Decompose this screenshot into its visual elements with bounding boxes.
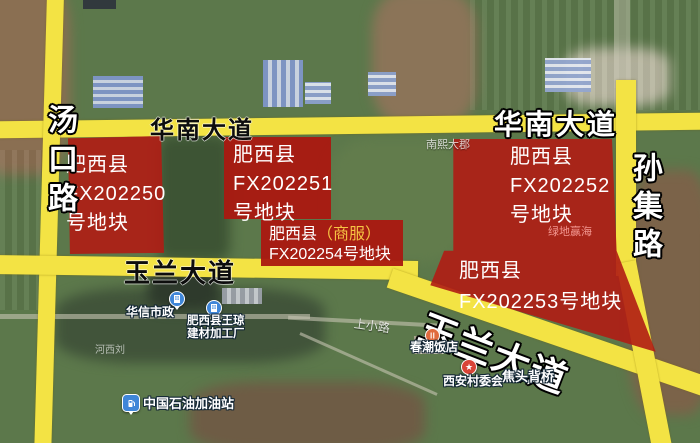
village-committee-poi-marker[interactable]: ★ [461, 359, 477, 375]
clipped-map-tag [83, 0, 116, 9]
poi-label-wangqiong-factory[interactable]: 肥西县王琼 建材加工厂 [187, 315, 245, 341]
parcel-line: 肥西县 [66, 151, 166, 180]
poi-label-line: 肥西县王琼 [187, 315, 245, 328]
parcel-line: 肥西县 [459, 256, 622, 287]
star-icon: ★ [465, 363, 473, 372]
parcel-line: 肥西县 [510, 143, 610, 172]
gas-pump-icon [127, 399, 136, 408]
building-cluster [263, 60, 303, 107]
parcel-label-fx202253: 肥西县 FX202253号地块 [459, 256, 622, 318]
parcel-line: 肥西县（商服） [269, 225, 391, 245]
parcel-line: FX202253号地块 [459, 287, 622, 318]
poi-label-huaxin[interactable]: 华信市政 [126, 306, 174, 319]
parcel-line: FX202254号地块 [269, 245, 391, 265]
place-label-hexiliu: 河西刘 [95, 341, 125, 356]
poi-label-line: 建材加工厂 [187, 328, 245, 341]
place-label-nanxi: 南熙大郡 [426, 136, 470, 152]
poi-label-jiaotou-bridge: 焦头背桥 [502, 370, 554, 383]
poi-label-chunchao[interactable]: 春潮饭店 [410, 341, 458, 354]
satellite-map-canvas[interactable]: 肥西县 FX202250 号地块 肥西县 FX202251 号地块 肥西县 FX… [0, 0, 700, 443]
parcel-line: 号地块 [233, 199, 333, 228]
parcel-label-fx202252: 肥西县 FX202252 号地块 [510, 143, 610, 230]
building-cluster [545, 58, 591, 92]
terrain-dirt-topcenter [372, 0, 477, 125]
parcel-label-fx202250: 肥西县 FX202250 号地块 [66, 151, 166, 238]
parcel-line: FX202251 [233, 170, 333, 199]
building-cluster [222, 288, 262, 304]
parcel-county: 肥西县 [269, 226, 317, 243]
parcel-line: FX202252 [510, 172, 610, 201]
building-cluster [368, 72, 396, 96]
parcel-line: FX202250 [66, 180, 166, 209]
building-icon [173, 295, 181, 303]
poi-label-xian-committee[interactable]: 西安村委会 [443, 375, 503, 388]
factory-poi-marker[interactable] [206, 300, 222, 316]
place-label-lvdi: 绿地赢海 [548, 223, 592, 239]
terrain-woods-strip [158, 135, 230, 260]
road-label-tangkou: 汤口路 [37, 104, 81, 221]
building-cluster [305, 82, 331, 104]
parcel-label-fx202251: 肥西县 FX202251 号地块 [233, 141, 333, 228]
road-label-sunji: 孙集路 [622, 152, 666, 266]
building-icon [210, 304, 218, 312]
road-label-huanan-east: 华南大道 [494, 103, 618, 143]
road-label-shangxiao: 上小路 [353, 315, 391, 337]
field-strips-top [470, 0, 700, 110]
building-cluster [93, 76, 143, 108]
poi-label-gas-station[interactable]: 中国石油加油站 [143, 397, 234, 410]
parcel-line: 号地块 [66, 209, 166, 238]
terrain-mud-bottom [190, 382, 425, 443]
road-label-huanan-west: 华南大道 [150, 110, 254, 145]
fork-knife-icon [429, 332, 436, 339]
gas-station-poi-marker[interactable] [122, 394, 140, 412]
parcel-label-fx202254: 肥西县（商服） FX202254号地块 [269, 225, 391, 265]
parcel-line: 肥西县 [233, 141, 333, 170]
parcel-usage-tag: （商服） [317, 226, 381, 243]
minor-road [614, 0, 630, 88]
road-label-yulan-west: 玉兰大道 [124, 253, 236, 290]
